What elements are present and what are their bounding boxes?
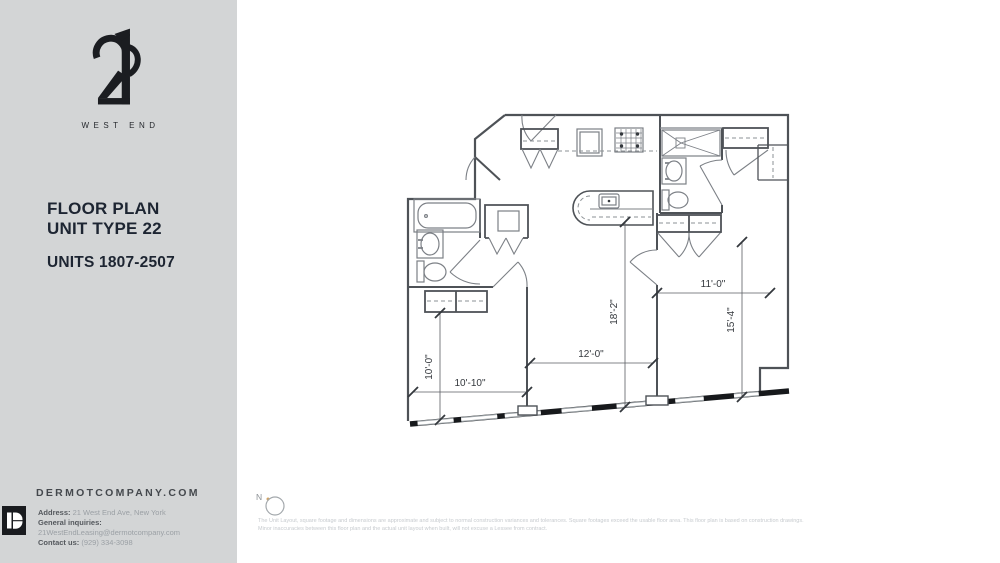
interior-walls: [408, 115, 722, 412]
exterior-walls: [408, 115, 788, 421]
floor-plan-drawing: 10'-0" 10'-10" 12'-0" 18'-2" 11'-0" 15'-…: [0, 0, 1000, 563]
toilet1-tank: [417, 261, 424, 282]
bathroom-2: [660, 128, 722, 210]
dim-bedroom2-width: 11'-0": [701, 279, 726, 290]
toilet2-bowl: [668, 192, 688, 208]
wall-foot-1: [518, 406, 537, 415]
bedroom1-fixtures: [425, 291, 668, 415]
dim-living-width: 12'-0": [578, 349, 604, 360]
stove: [615, 128, 643, 152]
wall-foot-2: [646, 396, 668, 405]
dimension-ticks: [408, 217, 775, 425]
toilet1-bowl: [424, 263, 446, 281]
compass-north-label: N: [256, 492, 262, 502]
dimension-lines: [408, 217, 775, 425]
compass: N: [256, 492, 284, 515]
closets-foyer: [485, 129, 558, 254]
shower: [662, 130, 720, 156]
refrigerator: [577, 129, 602, 156]
walkin-closet: [485, 205, 528, 238]
closet-bifold-doors: [489, 238, 523, 254]
kitchen: [558, 128, 657, 225]
dim-bedroom1-height: 10'-0": [424, 354, 435, 380]
dimension-labels: 10'-0" 10'-10" 12'-0" 18'-2" 11'-0" 15'-…: [424, 279, 737, 389]
compass-circle-icon: [266, 497, 284, 515]
dim-living-height: 18'-2": [609, 299, 620, 325]
window-wall: [410, 391, 789, 424]
dim-bedroom2-height: 15'-4": [726, 307, 737, 333]
disclaimer-line2: Minor inaccuracies between this floor pl…: [258, 525, 913, 533]
bathroom1-sink: [421, 233, 439, 255]
disclaimer-line1: The Unit Layout, square footage and dime…: [258, 517, 913, 525]
bathroom-1: [414, 199, 480, 282]
bathroom2-sink: [666, 161, 682, 181]
floorplan-flyer-page: WEST END FLOOR PLAN UNIT TYPE 22 UNITS 1…: [0, 0, 1000, 563]
dim-bedroom1-width: 10'-10": [454, 378, 485, 389]
